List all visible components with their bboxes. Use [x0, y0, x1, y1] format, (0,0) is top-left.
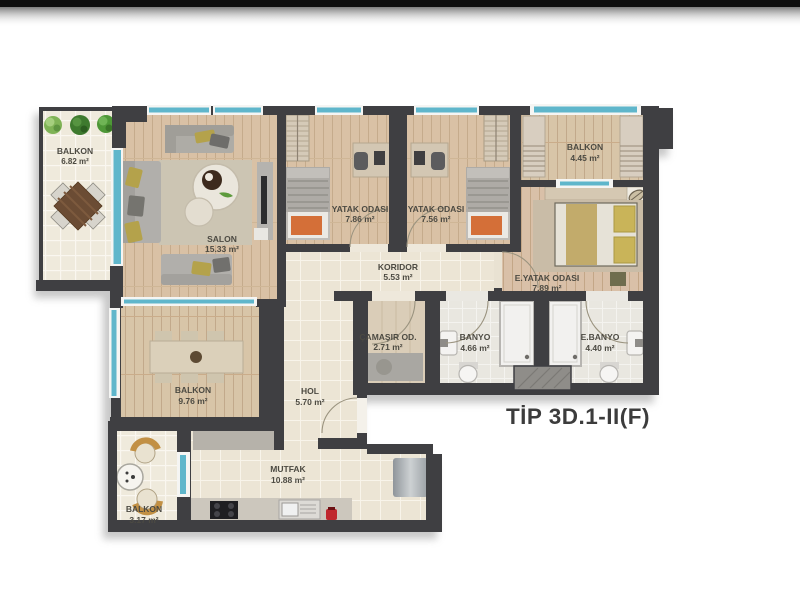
- svg-text:KORIDOR: KORIDOR: [378, 262, 418, 272]
- svg-text:YATAK ODASI: YATAK ODASI: [408, 204, 465, 214]
- svg-text:5.70 m²: 5.70 m²: [295, 397, 324, 407]
- svg-text:4.45 m²: 4.45 m²: [570, 153, 599, 163]
- svg-text:E.YATAK ODASI: E.YATAK ODASI: [515, 273, 580, 283]
- svg-text:6.82 m²: 6.82 m²: [61, 157, 89, 166]
- svg-text:YATAK ODASI: YATAK ODASI: [332, 204, 389, 214]
- svg-text:2.71 m²: 2.71 m²: [373, 342, 402, 352]
- svg-text:BALKON: BALKON: [175, 385, 211, 395]
- svg-text:BANYO: BANYO: [460, 332, 491, 342]
- svg-text:10.88 m²: 10.88 m²: [271, 475, 305, 485]
- svg-text:BALKON: BALKON: [567, 142, 603, 152]
- svg-text:BALKON: BALKON: [126, 504, 162, 514]
- svg-text:BALKON: BALKON: [57, 146, 93, 156]
- svg-text:9.76 m²: 9.76 m²: [178, 396, 207, 406]
- svg-text:MUTFAK: MUTFAK: [270, 464, 306, 474]
- svg-text:7.89 m²: 7.89 m²: [532, 283, 561, 293]
- svg-text:3.17 m²: 3.17 m²: [129, 515, 158, 525]
- svg-text:HOL: HOL: [301, 386, 319, 396]
- svg-text:4.40 m²: 4.40 m²: [585, 343, 614, 353]
- svg-text:7.56 m²: 7.56 m²: [421, 214, 450, 224]
- svg-text:TİP 3D.1-II(F): TİP 3D.1-II(F): [506, 404, 650, 429]
- svg-text:4.66 m²: 4.66 m²: [460, 343, 489, 353]
- svg-text:5.53 m²: 5.53 m²: [383, 272, 412, 282]
- svg-text:15.33 m²: 15.33 m²: [205, 244, 239, 254]
- svg-text:ÇAMAŞIR OD.: ÇAMAŞIR OD.: [359, 332, 416, 342]
- svg-text:SALON: SALON: [207, 234, 237, 244]
- svg-text:E.BANYO: E.BANYO: [581, 332, 620, 342]
- svg-text:7.86 m²: 7.86 m²: [345, 214, 374, 224]
